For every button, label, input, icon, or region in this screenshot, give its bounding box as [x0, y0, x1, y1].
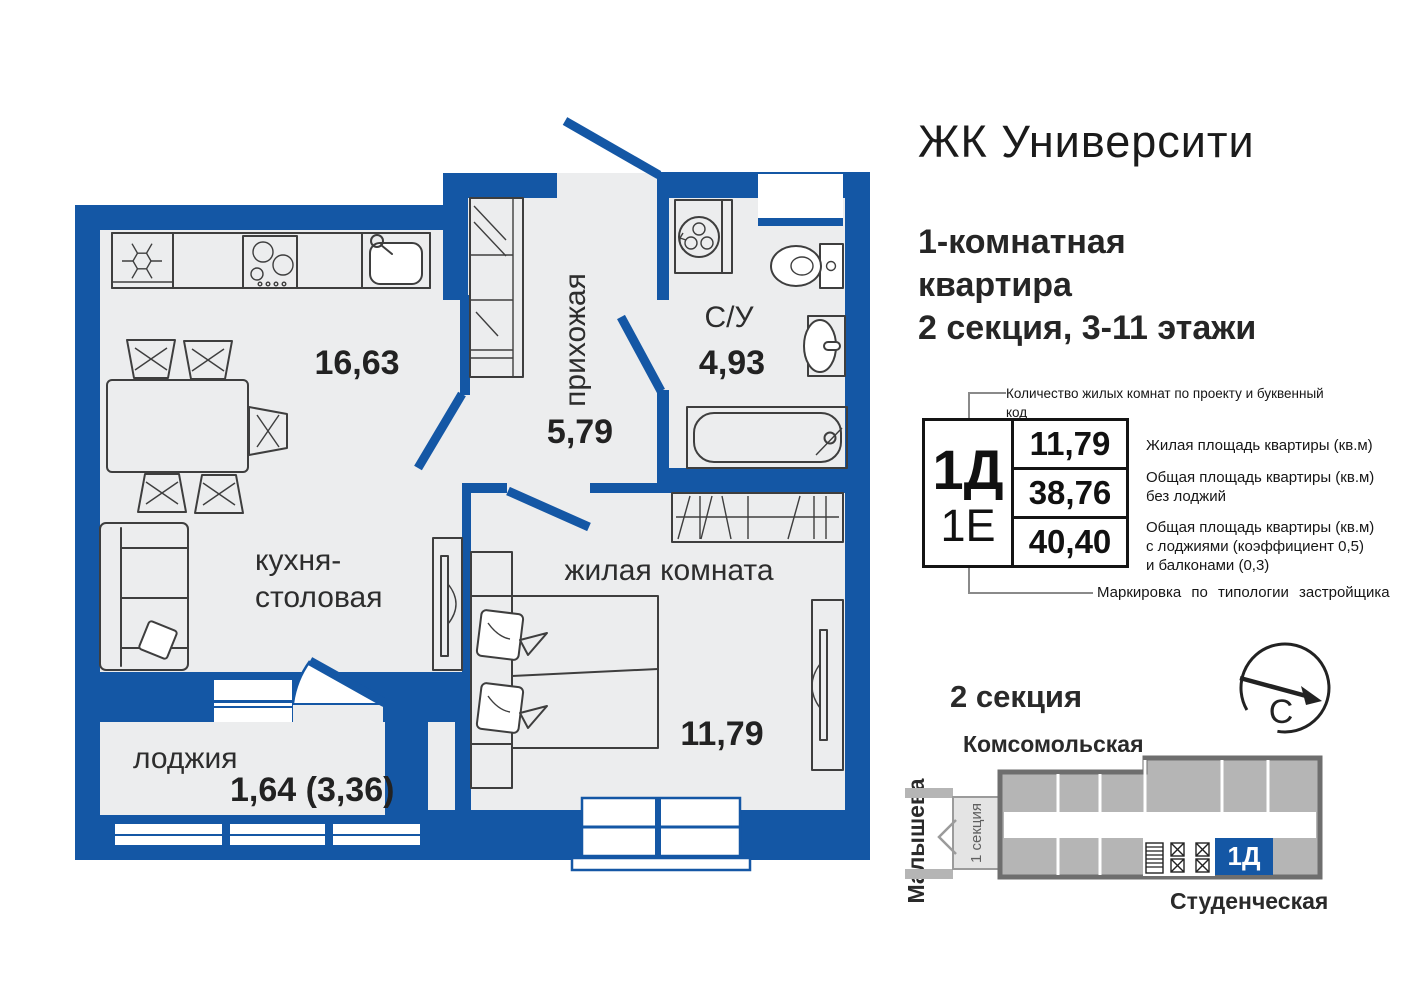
bathroom-name: С/У — [704, 301, 754, 334]
bathroom-niche — [758, 174, 843, 218]
loggia-area: 1,64 (3,36) — [230, 771, 394, 809]
corridor — [1004, 812, 1316, 838]
entry-door — [565, 121, 659, 175]
annotation-room-count: Количество жилых комнат по проекту и бук… — [1006, 384, 1346, 422]
leader-bottom-v — [968, 568, 970, 594]
north-label: С — [1269, 693, 1294, 731]
living-area: 11,79 — [680, 715, 763, 753]
apartment-subtitle: 1-комнатная квартира 2 секция, 3-11 этаж… — [918, 221, 1256, 350]
stove-icon — [243, 236, 297, 288]
hallway-name: прихожая — [559, 273, 592, 407]
street-studencheskaya: Студенческая — [1170, 888, 1328, 914]
hallway-wardrobe — [470, 198, 523, 377]
total-area-loggia-value: 40,40 — [1014, 519, 1126, 565]
highlighted-unit: 1Д — [1215, 838, 1273, 875]
north-arrow-icon: С — [1240, 644, 1329, 732]
leader-top-v — [968, 392, 970, 418]
washing-machine-icon — [675, 200, 732, 273]
floorplan-page: 16,63 кухня- столовая прихожая 5,79 С/У … — [0, 0, 1414, 1000]
section-location-map: 2 секция С Комсомольская Малышева Студен… — [890, 615, 1414, 1000]
highlighted-unit-label: 1Д — [1228, 841, 1261, 871]
street-komsomolskaya: Комсомольская — [963, 731, 1144, 757]
loggia-name: лоджия — [133, 742, 237, 775]
leader-top-h — [968, 392, 1006, 394]
living-name: жилая комната — [564, 554, 773, 587]
section-1-label: 1 секция — [968, 803, 985, 863]
section-title: 2 секция — [950, 679, 1082, 714]
spec-table: 1Д 1Е 11,79 38,76 40,40 — [922, 418, 1129, 568]
living-wardrobe — [672, 493, 843, 542]
annotation-living-area: Жилая площадь квартиры (кв.м) — [1146, 436, 1373, 455]
kitchen-name-2: столовая — [255, 581, 383, 614]
building-plan: 1Д — [1000, 758, 1320, 877]
total-area-value: 38,76 — [1014, 470, 1126, 516]
hallway-area: 5,79 — [547, 413, 613, 451]
sofa — [100, 523, 188, 670]
living-room-window — [572, 798, 750, 870]
kitchen-area: 16,63 — [314, 344, 399, 382]
fridge-icon — [112, 233, 173, 288]
annotation-marking: Маркировка по типологии застройщика — [1097, 583, 1390, 602]
window-sill — [572, 858, 750, 870]
complex-title: ЖК Университи — [918, 116, 1255, 168]
sink-icon — [362, 233, 430, 288]
stairs-icon — [1146, 843, 1163, 873]
leader-bottom-h — [968, 592, 1093, 594]
annotation-total-with-loggia: Общая площадь квартиры (кв.м) с лоджиями… — [1146, 518, 1374, 575]
bathroom-area: 4,93 — [699, 344, 765, 382]
dining-table — [107, 380, 248, 472]
room-code: 1Д — [932, 439, 1003, 501]
loggia-glazing — [115, 824, 420, 845]
apartment-floor-plan: 16,63 кухня- столовая прихожая 5,79 С/У … — [0, 0, 900, 1000]
kitchen-loggia-window — [214, 680, 292, 722]
unit-codes-cell: 1Д 1Е — [925, 421, 1011, 565]
living-area-value: 11,79 — [1014, 421, 1126, 467]
toilet-icon — [771, 244, 843, 288]
kitchen-name-1: кухня- — [255, 544, 341, 577]
type-code: 1Е — [940, 501, 995, 551]
annotation-total-area: Общая площадь квартиры (кв.м) без лоджий — [1146, 468, 1374, 506]
